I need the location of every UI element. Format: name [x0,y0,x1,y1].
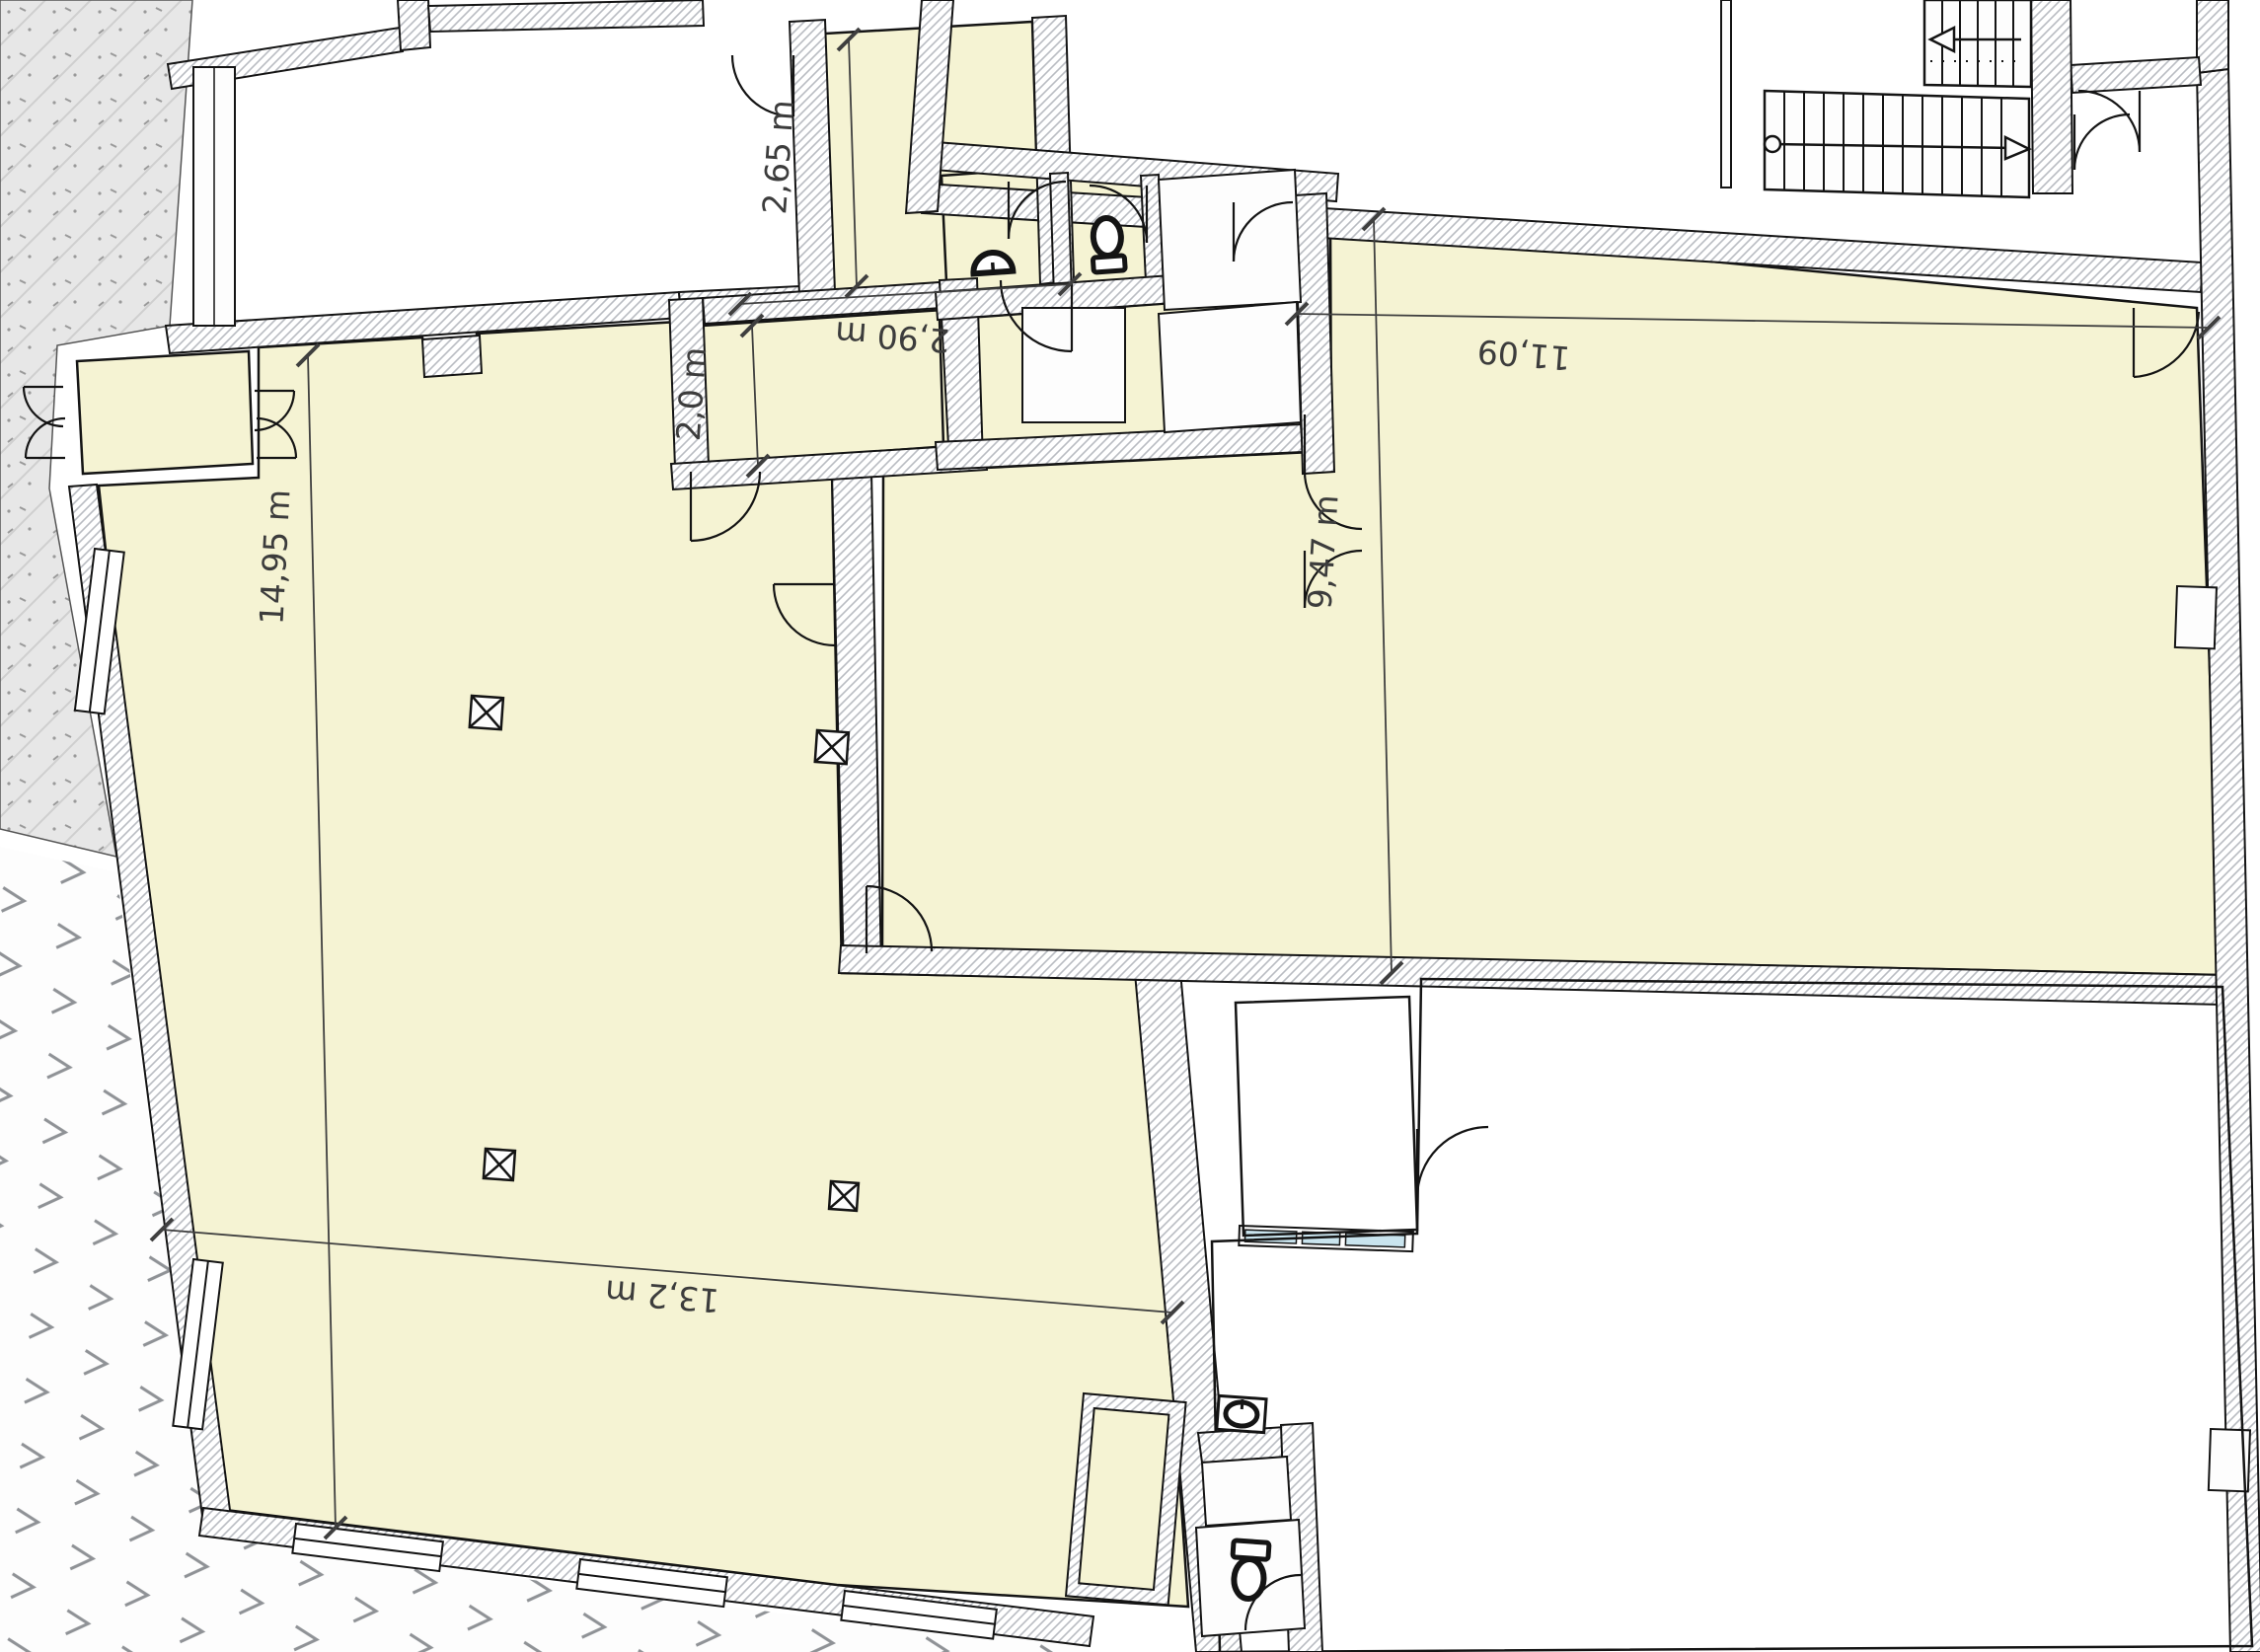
stairs [1765,0,2031,197]
dimension-label-right-room-height: 9,47 m [1301,493,1346,610]
floor-plan: 2,65 m 2,90 m 2,0 m 14,95 m 13,2 m 11,09… [0,0,2260,1652]
sink-icon [1217,1395,1266,1432]
stair-flight-lower [1765,91,2029,197]
column-marker [815,730,849,764]
floor-plan-page: 2,65 m 2,90 m 2,0 m 14,95 m 13,2 m 11,09… [0,0,2260,1652]
dimension-label-right-room-width: 11,09 [1475,332,1571,377]
vestibule-room [77,351,253,474]
column-marker [470,696,503,729]
stair-flight-upper [1924,0,2031,87]
dimension-label-corridor-width: 2,90 m [834,314,951,360]
dimension-label-corridor-height: 2,65 m [755,99,801,216]
bottom-wc-cluster [1196,1395,1322,1652]
column-marker [829,1181,859,1211]
dimension-label-back-room: 2,0 m [669,345,715,442]
toilet-icon [1091,217,1126,272]
column-marker [484,1149,515,1180]
hall-alcove [1066,1393,1186,1605]
door-arc [2074,114,2130,170]
bottom-right-rooms [1212,979,2252,1652]
door-arc [1417,1127,1488,1198]
stairwell-west-wall [1721,0,1731,188]
dimension-label-hall-length: 14,95 m [252,488,297,626]
door-arc [2078,91,2140,152]
